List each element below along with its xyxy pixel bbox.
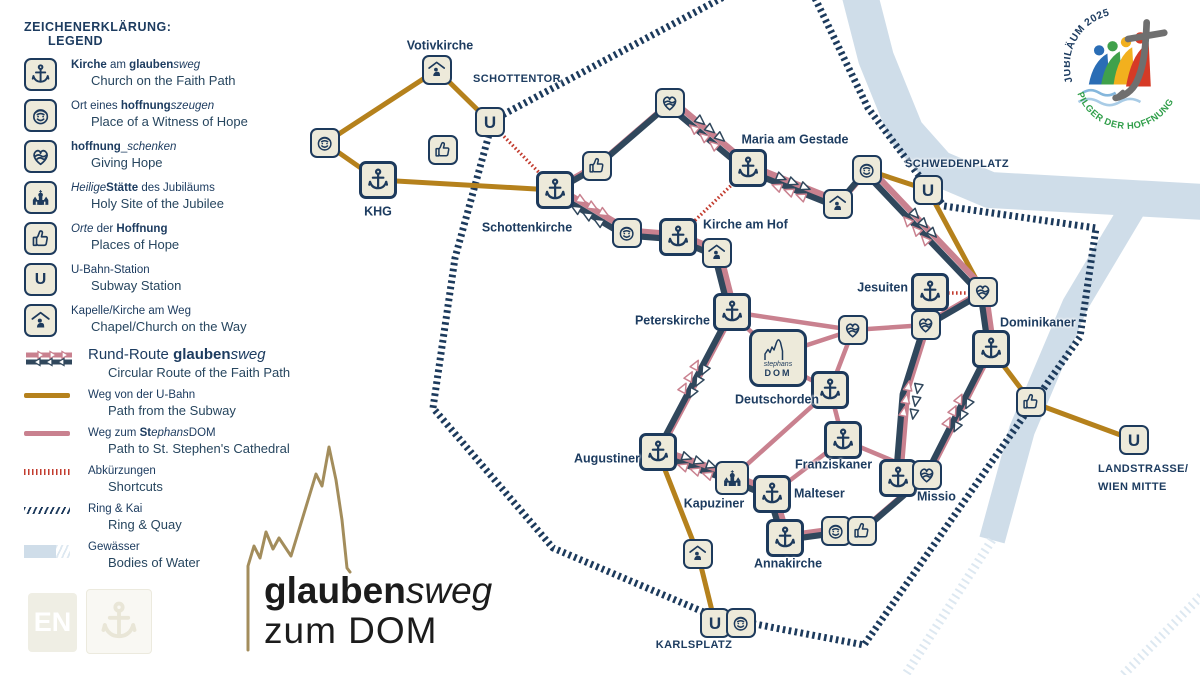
ubahn-swatch xyxy=(24,393,70,398)
chapel-icon xyxy=(827,193,848,214)
heart-icon xyxy=(916,464,937,485)
legend-route-water: GewässerBodies of Water xyxy=(24,540,304,570)
legend-title: ZEICHENERKLÄRUNG: LEGEND xyxy=(24,20,304,48)
map-node-hope-place-4 xyxy=(847,516,877,546)
church-icon xyxy=(29,186,52,209)
u-bahn-letter: U xyxy=(484,114,496,131)
map-label-kapuziner: Kapuziner xyxy=(684,497,744,510)
map-node-hope-place-3 xyxy=(1016,387,1046,417)
brand-title: glaubensweg zum DOM xyxy=(264,572,492,649)
smiley-icon xyxy=(29,104,52,127)
map-node-franziskaner xyxy=(824,421,862,459)
map-node-kirche-am-hof xyxy=(659,218,697,256)
legend-route-de: Weg von der U-Bahn xyxy=(88,389,236,401)
legend-route-en: Path to St. Stephen's Cathedral xyxy=(88,441,290,456)
legend-route-de: Weg zum StephansDOM xyxy=(88,427,290,439)
legend-route-en: Path from the Subway xyxy=(88,403,236,418)
ring-swatch xyxy=(24,507,70,514)
map-label-franziskaner: Franziskaner xyxy=(795,458,872,471)
u-bahn-letter: U xyxy=(922,182,934,199)
dom-swatch xyxy=(24,431,70,436)
smiley-icon xyxy=(856,159,877,180)
map-node-schottentor-u: U xyxy=(475,107,505,137)
kirche-icon xyxy=(772,525,798,551)
legend-icon-chapel xyxy=(24,304,57,337)
heart-icon xyxy=(915,314,936,335)
legend-route-short: AbkürzungenShortcuts xyxy=(24,464,304,494)
map-node-hope-place-2 xyxy=(582,151,612,181)
legend-label-en: Subway Station xyxy=(71,278,181,293)
heart-icon xyxy=(659,92,680,113)
map-label-malteser: Malteser xyxy=(794,487,845,500)
kirche-icon xyxy=(885,465,911,491)
map-label-schottenkirche: Schottenkirche xyxy=(482,221,572,234)
map-node-annakirche xyxy=(766,519,804,557)
chapel-icon xyxy=(426,59,447,80)
map-label-landstrasse-1: LANDSTRASSE/ xyxy=(1098,464,1188,476)
map-node-peterskirche xyxy=(713,293,751,331)
heart-icon xyxy=(972,281,993,302)
map-node-heart-1 xyxy=(655,88,685,118)
legend-label-en: Chapel/Church on the Way xyxy=(71,319,247,334)
stephansdom-text-2: DOM xyxy=(765,369,792,379)
legend-route-ring: Ring & KaiRing & Quay xyxy=(24,502,304,532)
legend-title-en: LEGEND xyxy=(24,34,304,48)
kirche-icon xyxy=(365,167,391,193)
legend-label-en: Places of Hope xyxy=(71,237,179,252)
water-swatch xyxy=(24,545,74,558)
thumbs-icon xyxy=(29,227,52,250)
thumbs-icon xyxy=(1020,391,1041,412)
legend-label-de: hoffnung_schenken xyxy=(71,141,176,153)
legend-label-en: Holy Site of the Jubilee xyxy=(71,196,224,211)
map-node-witness-am-hof xyxy=(612,218,642,248)
thumbs-icon xyxy=(432,139,453,160)
legend-icon-heart xyxy=(24,140,57,173)
map-node-hope-place-1 xyxy=(428,135,458,165)
legend-route-en: Bodies of Water xyxy=(88,555,200,570)
kirche-icon xyxy=(830,427,856,453)
ring-quay-line xyxy=(433,0,1096,645)
map-label-schwedenplatz: SCHWEDENPLATZ xyxy=(905,159,1009,171)
kirche-icon xyxy=(735,155,761,181)
map-node-augustiner xyxy=(639,433,677,471)
legend-label-en: Giving Hope xyxy=(71,155,176,170)
legend-route-de: Abkürzungen xyxy=(88,465,163,477)
map-node-dominikaner xyxy=(972,330,1010,368)
smiley-icon xyxy=(314,132,335,153)
legend-icon-thumbs xyxy=(24,222,57,255)
short-swatch xyxy=(24,469,70,475)
map-node-kapuziner xyxy=(715,461,749,495)
legend-item-heart: hoffnung_schenkenGiving Hope xyxy=(24,140,304,173)
map-node-heart-stephansplatz xyxy=(838,315,868,345)
map-label-khg: KHG xyxy=(364,205,392,218)
map-label-schottentor: SCHOTTENTOR xyxy=(473,74,561,86)
smiley-icon xyxy=(730,612,751,633)
map-node-khg xyxy=(359,161,397,199)
legend-item-ubahn: UU-Bahn-StationSubway Station xyxy=(24,263,304,296)
faint-anchor-icon xyxy=(86,589,152,654)
legend-label-de: Orte der Hoffnung xyxy=(71,223,179,235)
legend-item-kirche: Kirche am glaubenswegChurch on the Faith… xyxy=(24,58,304,91)
legend-title-de: ZEICHENERKLÄRUNG: xyxy=(24,20,304,34)
kirche-icon xyxy=(917,279,943,305)
legend-label-en: Church on the Faith Path xyxy=(71,73,236,88)
heart-icon xyxy=(842,319,863,340)
kirche-icon xyxy=(29,63,52,86)
map-node-votivkirche xyxy=(422,55,452,85)
map-node-jesuiten xyxy=(911,273,949,311)
legend-icon-church xyxy=(24,181,57,214)
legend-route-en: Ring & Quay xyxy=(88,517,182,532)
stephansdom-spire-icon xyxy=(761,339,795,361)
legend-route-en: Shortcuts xyxy=(88,479,163,494)
thumbs-icon xyxy=(851,520,872,541)
kirche-icon xyxy=(719,299,745,325)
legend-item-thumbs: Orte der HoffnungPlaces of Hope xyxy=(24,222,304,255)
church-icon xyxy=(720,466,745,491)
legend-label-de: Ort eines hoffnungszeugen xyxy=(71,100,248,112)
legend-icon-smiley xyxy=(24,99,57,132)
map-label-kirche-am-hof: Kirche am Hof xyxy=(703,218,788,231)
u-bahn-letter: U xyxy=(709,615,721,632)
kirche-icon xyxy=(665,224,691,250)
legend-route-dom: Weg zum StephansDOMPath to St. Stephen's… xyxy=(24,426,304,456)
map-node-maria-am-gestade xyxy=(729,149,767,187)
legend-items: Kirche am glaubenswegChurch on the Faith… xyxy=(24,58,304,337)
legend-item-church: HeiligeStätte des JubiläumsHoly Site of … xyxy=(24,181,304,214)
circular-route-swatch xyxy=(24,350,74,367)
legend-label-de: Kirche am glaubensweg xyxy=(71,59,236,71)
map-node-schottenkirche xyxy=(536,171,574,209)
brand-glauben: glauben xyxy=(264,570,406,611)
map-node-witness-schwedenplatz xyxy=(852,155,882,185)
map-label-dominikaner: Dominikaner xyxy=(1000,316,1076,329)
legend-icon-kirche xyxy=(24,58,57,91)
brand-line2: zum DOM xyxy=(264,612,492,649)
map-node-landstrasse-u: U xyxy=(1119,425,1149,455)
kirche-icon xyxy=(817,377,843,403)
map-label-missio: Missio xyxy=(917,490,956,503)
kirche-icon xyxy=(542,177,568,203)
legend-panel: ZEICHENERKLÄRUNG: LEGEND Kirche am glaub… xyxy=(24,20,304,578)
map-node-chapel-gestade xyxy=(823,189,853,219)
jubilee-2025-logo: JUBILÄUM 2025 PILGER DER HOFFNUNG xyxy=(1064,8,1188,137)
smiley-icon xyxy=(616,222,637,243)
map-node-stephansdom: stephansDOM xyxy=(749,329,807,387)
map-label-annakirche: Annakirche xyxy=(754,557,822,570)
map-node-chapel-am-hof xyxy=(702,238,732,268)
brand-sweg: sweg xyxy=(406,570,492,611)
legend-route-ubahn: Weg von der U-BahnPath from the Subway xyxy=(24,388,304,418)
map-node-schwedenplatz-u: U xyxy=(913,175,943,205)
smiley-icon xyxy=(825,520,846,541)
u-bahn-letter: U xyxy=(1128,432,1140,449)
legend-route-de: Rund-Route glaubensweg xyxy=(88,346,290,363)
kirche-icon xyxy=(759,481,785,507)
map-label-votivkirche: Votivkirche xyxy=(407,39,473,52)
kirche-icon xyxy=(645,439,671,465)
legend-route-de: Gewässer xyxy=(88,541,200,553)
chapel-icon xyxy=(706,242,727,263)
map-label-jesuiten: Jesuiten xyxy=(857,281,908,294)
legend-route-de: Ring & Kai xyxy=(88,503,182,515)
map-label-maria-am-gestade: Maria am Gestade xyxy=(742,133,849,146)
legend-item-smiley: Ort eines hoffnungszeugenPlace of a Witn… xyxy=(24,99,304,132)
legend-label-en: Place of a Witness of Hope xyxy=(71,114,248,129)
language-badge-en[interactable]: EN xyxy=(28,593,77,652)
chapel-icon xyxy=(29,309,52,332)
thumbs-icon xyxy=(586,155,607,176)
map-node-heart-dominikaner xyxy=(968,277,998,307)
legend-item-chapel: Kapelle/Kirche am WegChapel/Church on th… xyxy=(24,304,304,337)
map-node-chapel-wieden xyxy=(683,539,713,569)
legend-icon-ubahn: U xyxy=(24,263,57,296)
map-label-peterskirche: Peterskirche xyxy=(635,314,710,327)
map-label-karlsplatz: KARLSPLATZ xyxy=(656,640,733,652)
map-node-heart-missio xyxy=(912,460,942,490)
map-label-deutschorden: Deutschorden xyxy=(735,393,819,406)
brand-line1: glaubensweg xyxy=(264,572,492,609)
chapel-icon xyxy=(687,543,708,564)
u-bahn-letter: U xyxy=(35,271,47,289)
legend-label-de: U-Bahn-Station xyxy=(71,264,181,276)
map-label-landstrasse-2: WIEN MITTE xyxy=(1098,482,1167,494)
heart-icon xyxy=(29,145,52,168)
map-node-malteser xyxy=(753,475,791,513)
map-node-heart-jesuiten xyxy=(911,310,941,340)
map-node-witness-alsergrund xyxy=(310,128,340,158)
legend-route-rund: Rund-Route glaubenswegCircular Route of … xyxy=(24,345,304,380)
legend-route-items: Rund-Route glaubenswegCircular Route of … xyxy=(24,345,304,570)
kirche-icon xyxy=(978,336,1004,362)
legend-label-de: HeiligeStätte des Jubiläums xyxy=(71,182,224,194)
legend-label-de: Kapelle/Kirche am Weg xyxy=(71,305,247,317)
map-label-augustiner: Augustiner xyxy=(574,452,640,465)
map-node-witness-karlsplatz xyxy=(726,608,756,638)
legend-route-en: Circular Route of the Faith Path xyxy=(88,365,290,380)
